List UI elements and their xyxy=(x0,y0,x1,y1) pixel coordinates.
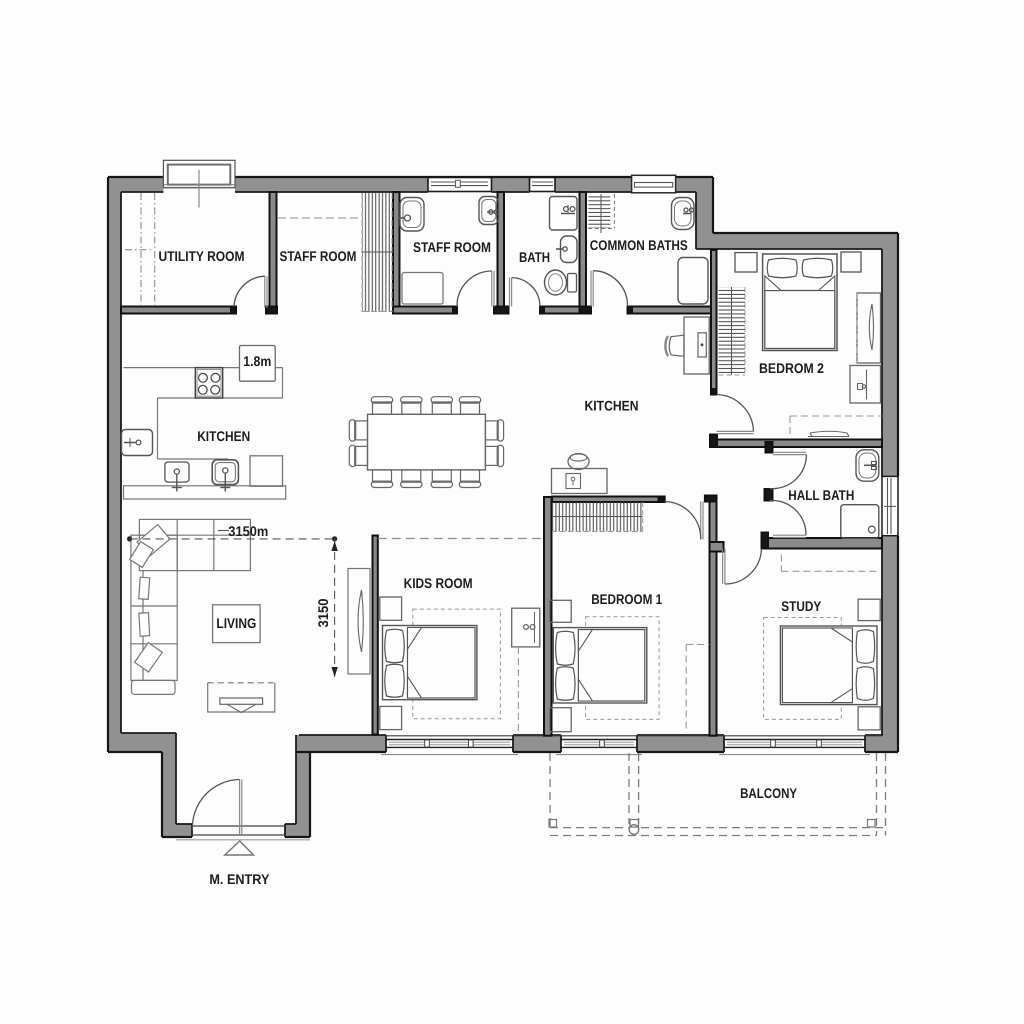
svg-text:1.8m: 1.8m xyxy=(243,353,271,369)
svg-text:STAFF ROOM: STAFF ROOM xyxy=(413,239,491,255)
svg-text:BATH: BATH xyxy=(519,249,550,265)
svg-text:HALL BATH: HALL BATH xyxy=(788,487,854,503)
svg-text:STUDY: STUDY xyxy=(781,598,822,614)
svg-text:COMMON BATHS: COMMON BATHS xyxy=(590,237,688,253)
svg-text:LIVING: LIVING xyxy=(216,615,256,631)
svg-text:KITCHEN: KITCHEN xyxy=(585,398,639,414)
svg-text:BEDROM 2: BEDROM 2 xyxy=(759,360,824,376)
svg-text:BEDROOM 1: BEDROOM 1 xyxy=(591,591,662,607)
svg-text:3150: 3150 xyxy=(315,598,331,627)
svg-text:M. ENTRY: M. ENTRY xyxy=(209,871,270,887)
svg-text:3150m: 3150m xyxy=(228,523,268,539)
svg-text:KIDS ROOM: KIDS ROOM xyxy=(404,575,473,591)
svg-text:BALCONY: BALCONY xyxy=(740,785,798,801)
svg-text:STAFF ROOM: STAFF ROOM xyxy=(280,248,357,264)
svg-text:UTILITY ROOM: UTILITY ROOM xyxy=(159,248,245,264)
svg-text:KITCHEN: KITCHEN xyxy=(197,428,250,444)
